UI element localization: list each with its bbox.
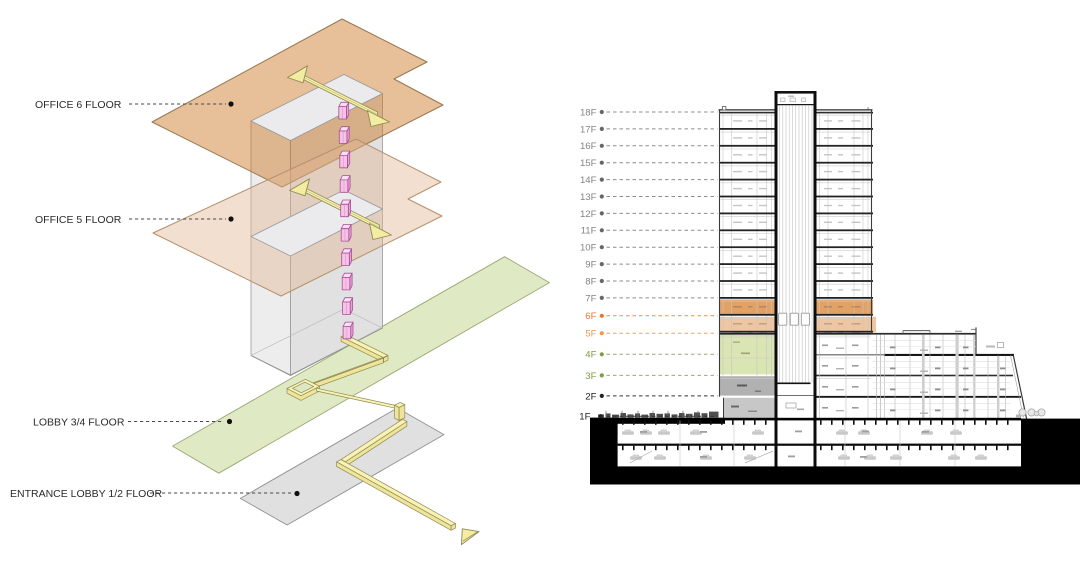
svg-text:6F: 6F [585,311,596,322]
svg-text:14F: 14F [580,175,597,186]
svg-text:13F: 13F [580,192,597,203]
svg-text:7F: 7F [585,293,596,304]
svg-text:17F: 17F [580,124,597,135]
svg-text:4F: 4F [585,350,596,361]
svg-text:LOBBY 3/4 FLOOR: LOBBY 3/4 FLOOR [33,417,125,429]
svg-text:15F: 15F [580,158,597,169]
svg-text:8F: 8F [585,276,596,287]
svg-text:11F: 11F [581,226,597,237]
svg-text:OFFICE 6 FLOOR: OFFICE 6 FLOOR [35,99,122,111]
svg-text:16F: 16F [580,141,597,152]
svg-text:5F: 5F [585,329,596,340]
svg-text:9F: 9F [585,260,596,271]
svg-text:1F: 1F [579,412,590,423]
svg-text:10F: 10F [580,243,597,254]
svg-text:18F: 18F [580,107,597,118]
svg-text:3F: 3F [585,371,596,382]
svg-text:OFFICE 5 FLOOR: OFFICE 5 FLOOR [35,214,122,226]
svg-text:ENTRANCE LOBBY 1/2 FLOOR: ENTRANCE LOBBY 1/2 FLOOR [10,488,163,500]
svg-text:12F: 12F [580,209,597,220]
svg-text:2F: 2F [585,391,596,402]
